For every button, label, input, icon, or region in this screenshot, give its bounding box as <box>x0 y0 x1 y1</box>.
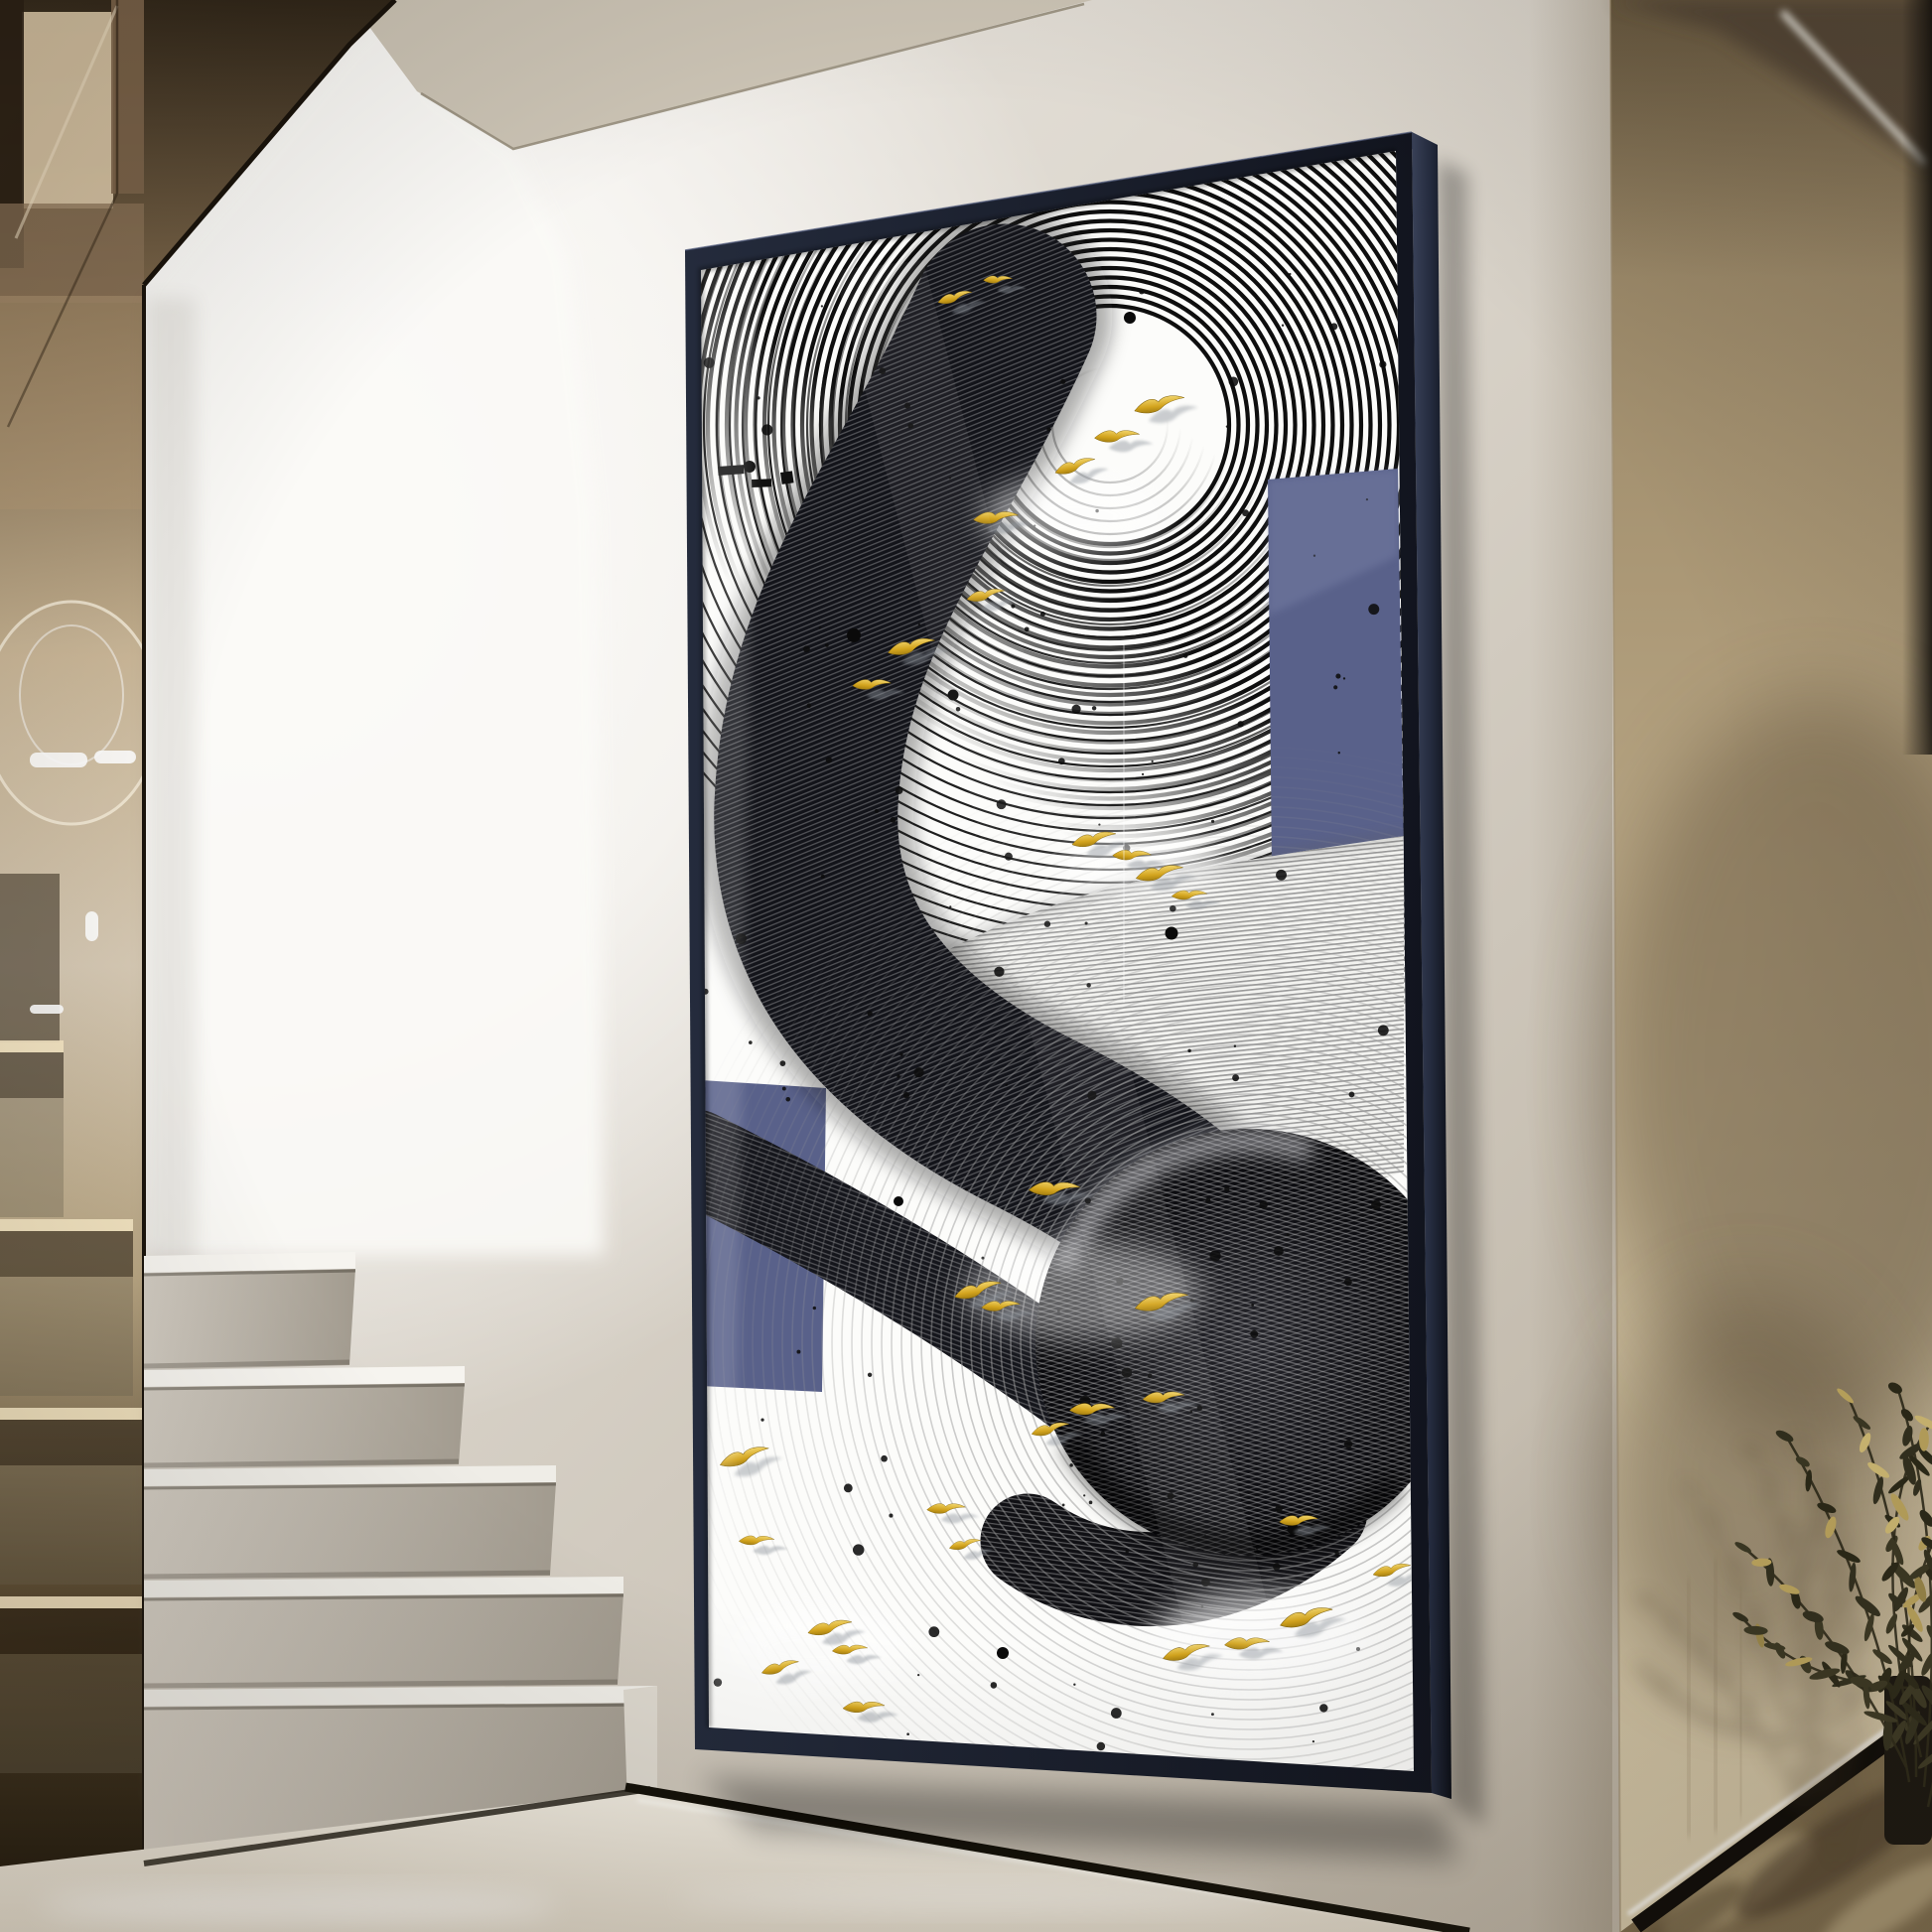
interior-scene-photo <box>0 0 1932 1932</box>
scene-canvas <box>0 0 1932 1932</box>
vignette <box>0 0 1932 1932</box>
